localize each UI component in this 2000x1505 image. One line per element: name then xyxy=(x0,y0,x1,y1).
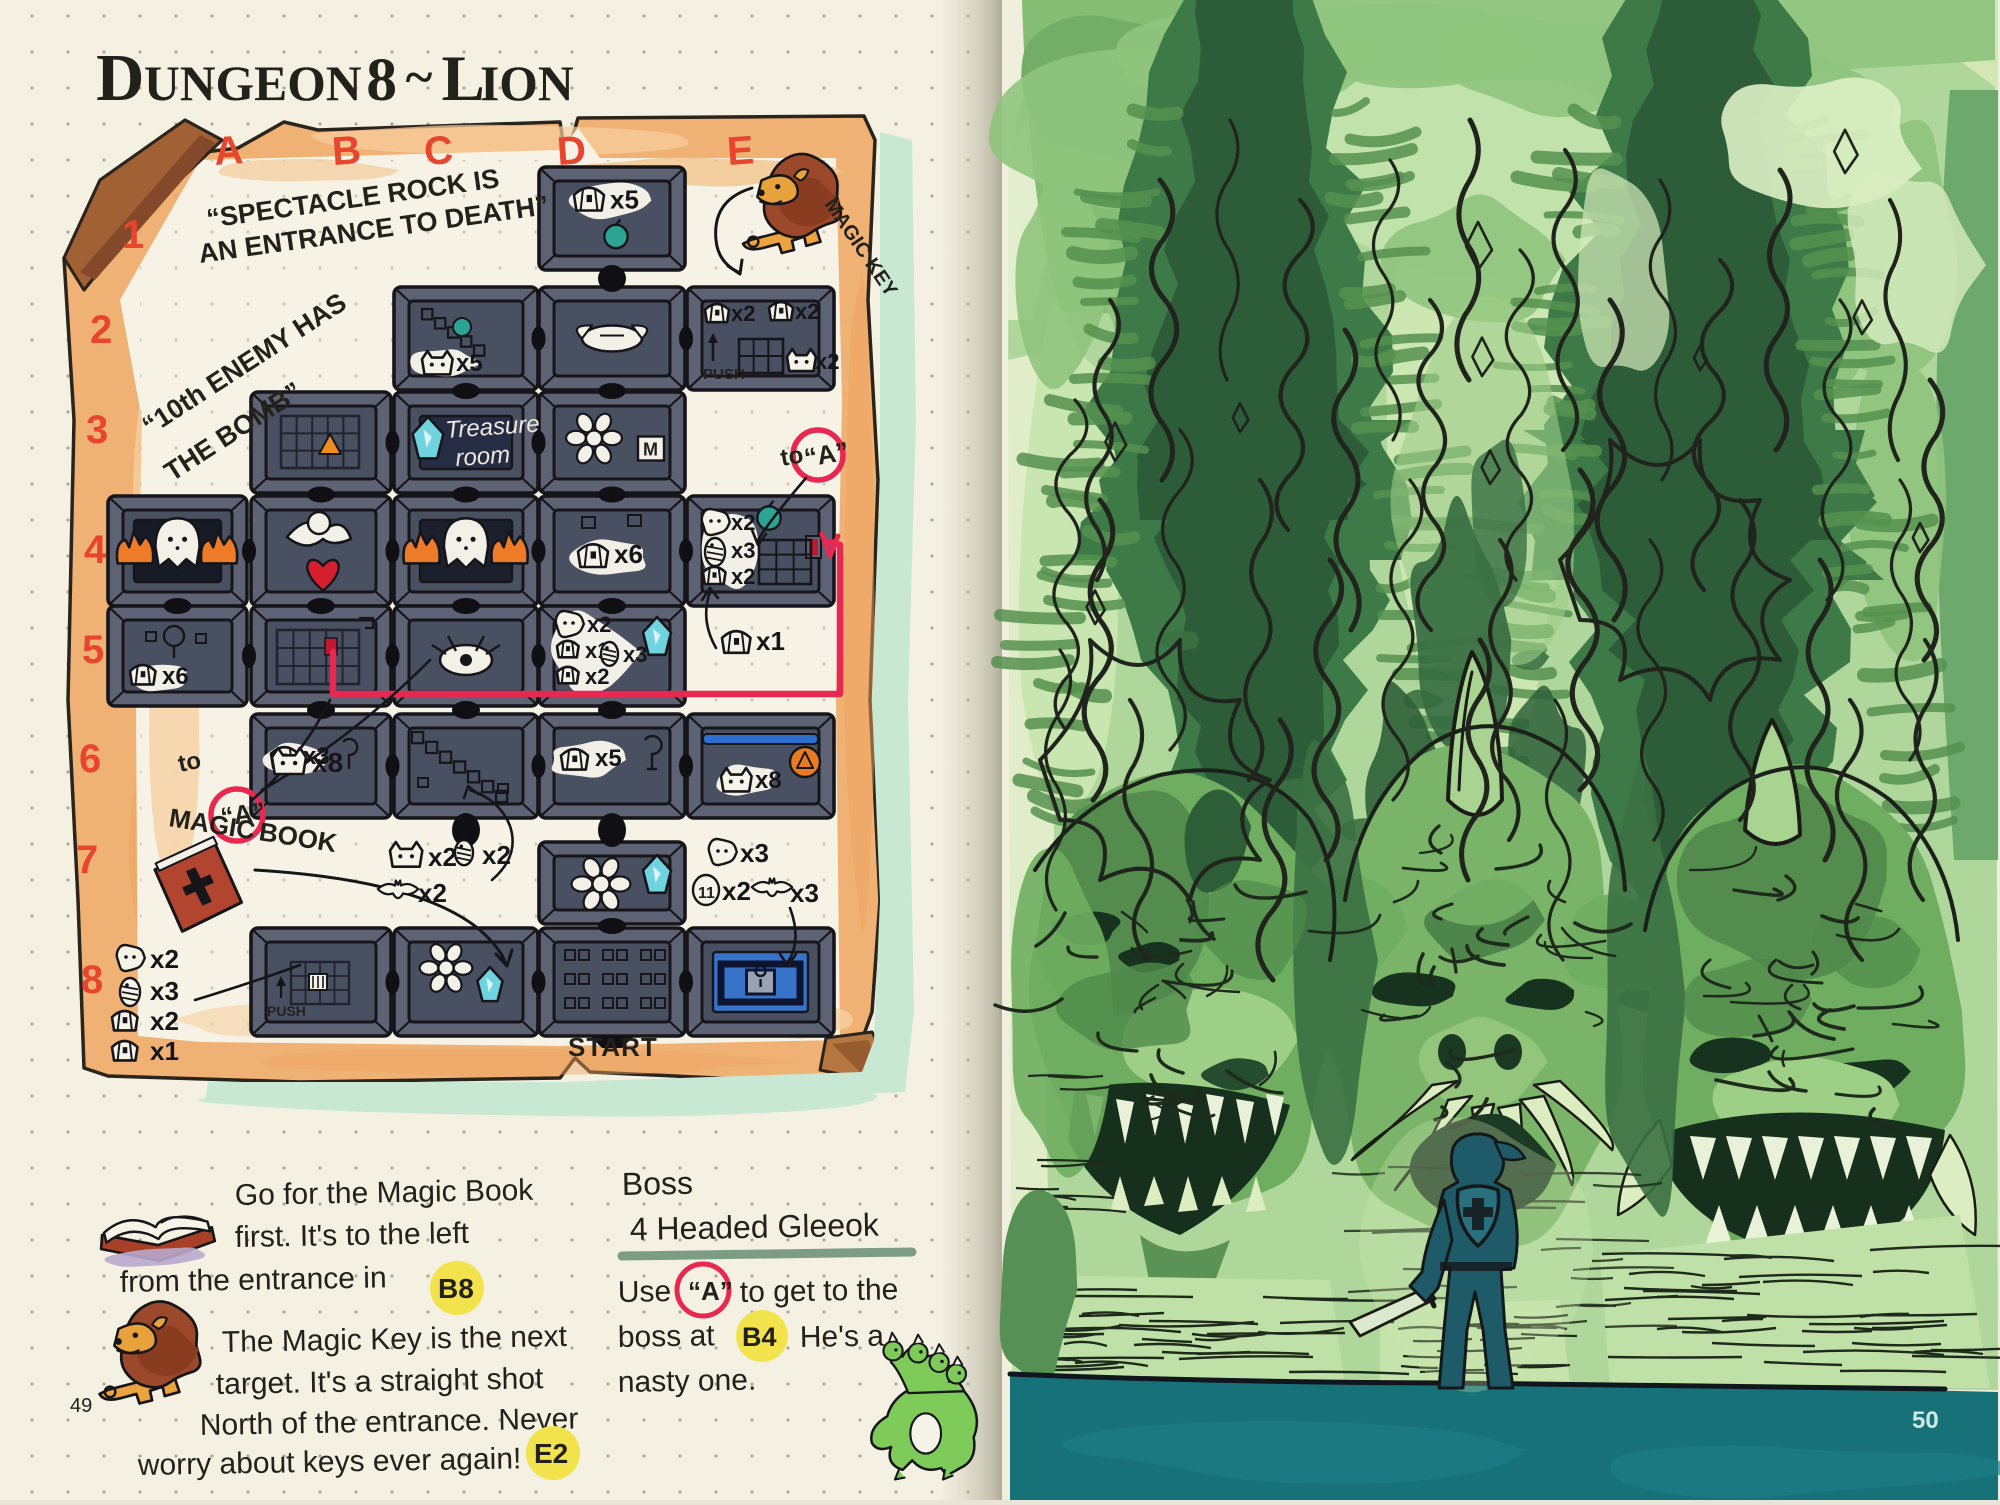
svg-text:4 Headed Gleeok: 4 Headed Gleeok xyxy=(629,1207,880,1247)
svg-text:PUSH: PUSH xyxy=(267,1003,306,1019)
svg-text:E2: E2 xyxy=(534,1438,568,1469)
svg-text:3: 3 xyxy=(86,408,108,452)
svg-text:M: M xyxy=(643,440,658,460)
svg-text:7: 7 xyxy=(76,838,98,882)
svg-text:x6: x6 xyxy=(162,663,189,690)
svg-text:He's a: He's a xyxy=(800,1320,885,1354)
svg-text:11: 11 xyxy=(698,885,715,902)
svg-text:50: 50 xyxy=(1912,1407,1939,1434)
svg-text:x3: x3 xyxy=(740,838,769,868)
svg-text:x2: x2 xyxy=(418,878,447,908)
svg-text:Use: Use xyxy=(618,1275,672,1309)
svg-text:8: 8 xyxy=(81,958,103,1002)
svg-text:D: D xyxy=(556,128,588,174)
svg-text:room: room xyxy=(455,441,511,472)
svg-text:x6: x6 xyxy=(614,539,643,569)
svg-text:C: C xyxy=(423,128,455,174)
svg-text:x1: x1 xyxy=(756,626,785,656)
svg-text:x2: x2 xyxy=(428,842,457,872)
svg-text:from the entrance in: from the entrance in xyxy=(120,1261,387,1299)
svg-text:x2: x2 xyxy=(731,564,755,589)
svg-text:UNGEON: UNGEON xyxy=(144,56,362,111)
svg-text:x2: x2 xyxy=(722,876,751,906)
svg-text:x2: x2 xyxy=(585,664,609,689)
svg-text:L: L xyxy=(441,43,484,115)
svg-text:x3: x3 xyxy=(790,878,819,908)
svg-text:first. It's to the left: first. It's to the left xyxy=(235,1217,470,1254)
svg-text:x3: x3 xyxy=(623,642,647,667)
svg-text:6: 6 xyxy=(79,737,101,781)
svg-text:B: B xyxy=(331,128,363,174)
svg-text:x2: x2 xyxy=(731,301,755,326)
svg-text:Boss: Boss xyxy=(621,1165,693,1202)
svg-text:x3: x3 xyxy=(731,538,755,563)
svg-text:x3: x3 xyxy=(150,976,179,1006)
svg-text:49: 49 xyxy=(70,1395,92,1417)
svg-text:~: ~ xyxy=(406,49,433,106)
svg-text:target. It's a straight shot: target. It's a straight shot xyxy=(216,1362,545,1401)
svg-text:4: 4 xyxy=(84,528,107,572)
svg-text:2: 2 xyxy=(90,308,112,352)
svg-text:x5: x5 xyxy=(456,350,483,377)
svg-text:Go for the Magic Book: Go for the Magic Book xyxy=(235,1174,535,1212)
svg-text:boss at: boss at xyxy=(618,1319,716,1354)
svg-text:nasty one.: nasty one. xyxy=(618,1364,757,1399)
svg-text:START: START xyxy=(568,1032,658,1062)
svg-text:x2: x2 xyxy=(150,944,179,974)
svg-text:“A”: “A” xyxy=(688,1276,733,1306)
svg-text:x1: x1 xyxy=(150,1036,179,1066)
svg-text:North of the entrance. Never: North of the entrance. Never xyxy=(200,1402,579,1442)
svg-text:x5: x5 xyxy=(595,745,622,772)
svg-text:1: 1 xyxy=(122,213,144,257)
svg-text:x2: x2 xyxy=(815,349,839,374)
svg-text:worry about keys ever again!: worry about keys ever again! xyxy=(137,1442,522,1482)
svg-text:5: 5 xyxy=(82,628,104,672)
svg-text:x8: x8 xyxy=(755,767,782,794)
svg-text:x2: x2 xyxy=(587,612,611,637)
svg-text:x2: x2 xyxy=(795,299,819,324)
svg-text:to get to the: to get to the xyxy=(740,1273,899,1309)
svg-text:A: A xyxy=(213,128,245,174)
svg-text:ION: ION xyxy=(480,56,574,111)
svg-text:D: D xyxy=(96,42,144,115)
svg-text:E: E xyxy=(726,128,756,174)
svg-text:x5: x5 xyxy=(610,185,639,215)
svg-text:x8: x8 xyxy=(312,747,343,778)
svg-text:x2: x2 xyxy=(150,1006,179,1036)
svg-text:B8: B8 xyxy=(438,1273,474,1304)
svg-text:B4: B4 xyxy=(742,1322,777,1352)
svg-text:The Magic Key is the next: The Magic Key is the next xyxy=(222,1320,568,1359)
svg-text:8: 8 xyxy=(366,46,397,114)
